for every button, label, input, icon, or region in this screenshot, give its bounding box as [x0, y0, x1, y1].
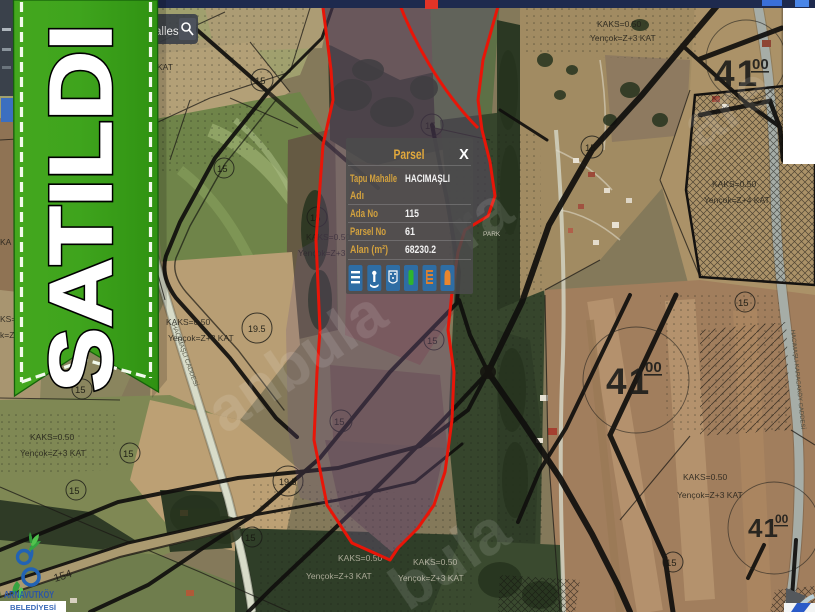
svg-text:Parsel No: Parsel No — [350, 226, 386, 238]
svg-text:BELEDİYESİ: BELEDİYESİ — [10, 603, 56, 612]
svg-text:Tapu Mahalle: Tapu Mahalle — [350, 173, 397, 185]
svg-text:68230.2: 68230.2 — [405, 244, 436, 256]
svg-text:SATILDI: SATILDI — [31, 24, 130, 392]
svg-text:Parsel: Parsel — [394, 147, 425, 162]
svg-text:15: 15 — [585, 143, 596, 154]
svg-text:19.5: 19.5 — [279, 477, 297, 487]
svg-text:61: 61 — [405, 226, 415, 238]
svg-text:KAKS=0.50: KAKS=0.50 — [597, 19, 641, 29]
svg-text:Yençok=Z+4 KAT: Yençok=Z+4 KAT — [704, 195, 770, 205]
svg-text:Yençok=Z+3 KAT: Yençok=Z+3 KAT — [20, 448, 86, 458]
svg-text:Alan (m²): Alan (m²) — [350, 244, 388, 256]
svg-text:Yençok=Z+3 KAT: Yençok=Z+3 KAT — [168, 333, 234, 343]
svg-text:ARNAVUTKÖY: ARNAVUTKÖY — [4, 588, 54, 601]
svg-text:KAKS=0.50: KAKS=0.50 — [30, 432, 74, 442]
svg-text:00: 00 — [775, 512, 789, 526]
svg-text:15: 15 — [123, 449, 134, 460]
svg-text:Yençok=Z+3 KAT: Yençok=Z+3 KAT — [677, 490, 743, 500]
svg-text:15: 15 — [738, 298, 749, 309]
svg-text:Yençok=Z+3 KAT: Yençok=Z+3 KAT — [590, 33, 656, 43]
svg-text:15: 15 — [245, 533, 256, 544]
svg-text:15: 15 — [217, 164, 228, 175]
svg-text:KAKS=0.50: KAKS=0.50 — [166, 317, 210, 327]
svg-text:19.5: 19.5 — [248, 324, 266, 334]
svg-text:115: 115 — [405, 208, 419, 220]
svg-text:15: 15 — [255, 76, 266, 87]
svg-text:00: 00 — [645, 359, 662, 376]
svg-text:HACIMAŞLI: HACIMAŞLI — [405, 173, 450, 185]
svg-text:Yençok=Z+3 KAT: Yençok=Z+3 KAT — [306, 571, 372, 581]
svg-text:Adı: Adı — [350, 190, 364, 202]
svg-text:KAKS=0.50: KAKS=0.50 — [712, 179, 756, 189]
svg-text:15: 15 — [666, 558, 677, 569]
svg-text:X: X — [459, 147, 469, 163]
svg-text:KA: KA — [0, 237, 12, 247]
svg-text:KAKS=0.50: KAKS=0.50 — [683, 472, 727, 482]
svg-text:Ada No: Ada No — [350, 208, 378, 220]
svg-text:15: 15 — [69, 486, 80, 497]
